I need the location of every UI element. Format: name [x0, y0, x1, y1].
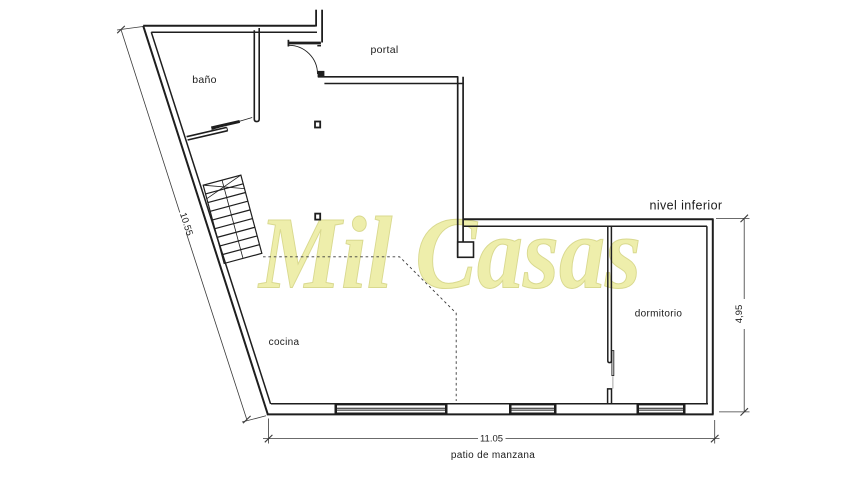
svg-text:patio de manzana: patio de manzana: [451, 450, 535, 461]
svg-text:portal: portal: [370, 44, 398, 56]
svg-text:baño: baño: [192, 74, 217, 86]
svg-text:11.05: 11.05: [480, 434, 503, 445]
svg-text:nivel inferior: nivel inferior: [650, 199, 723, 213]
svg-text:4,95: 4,95: [734, 305, 745, 324]
svg-text:cocina: cocina: [269, 337, 300, 348]
svg-text:dormitorio: dormitorio: [635, 309, 683, 320]
